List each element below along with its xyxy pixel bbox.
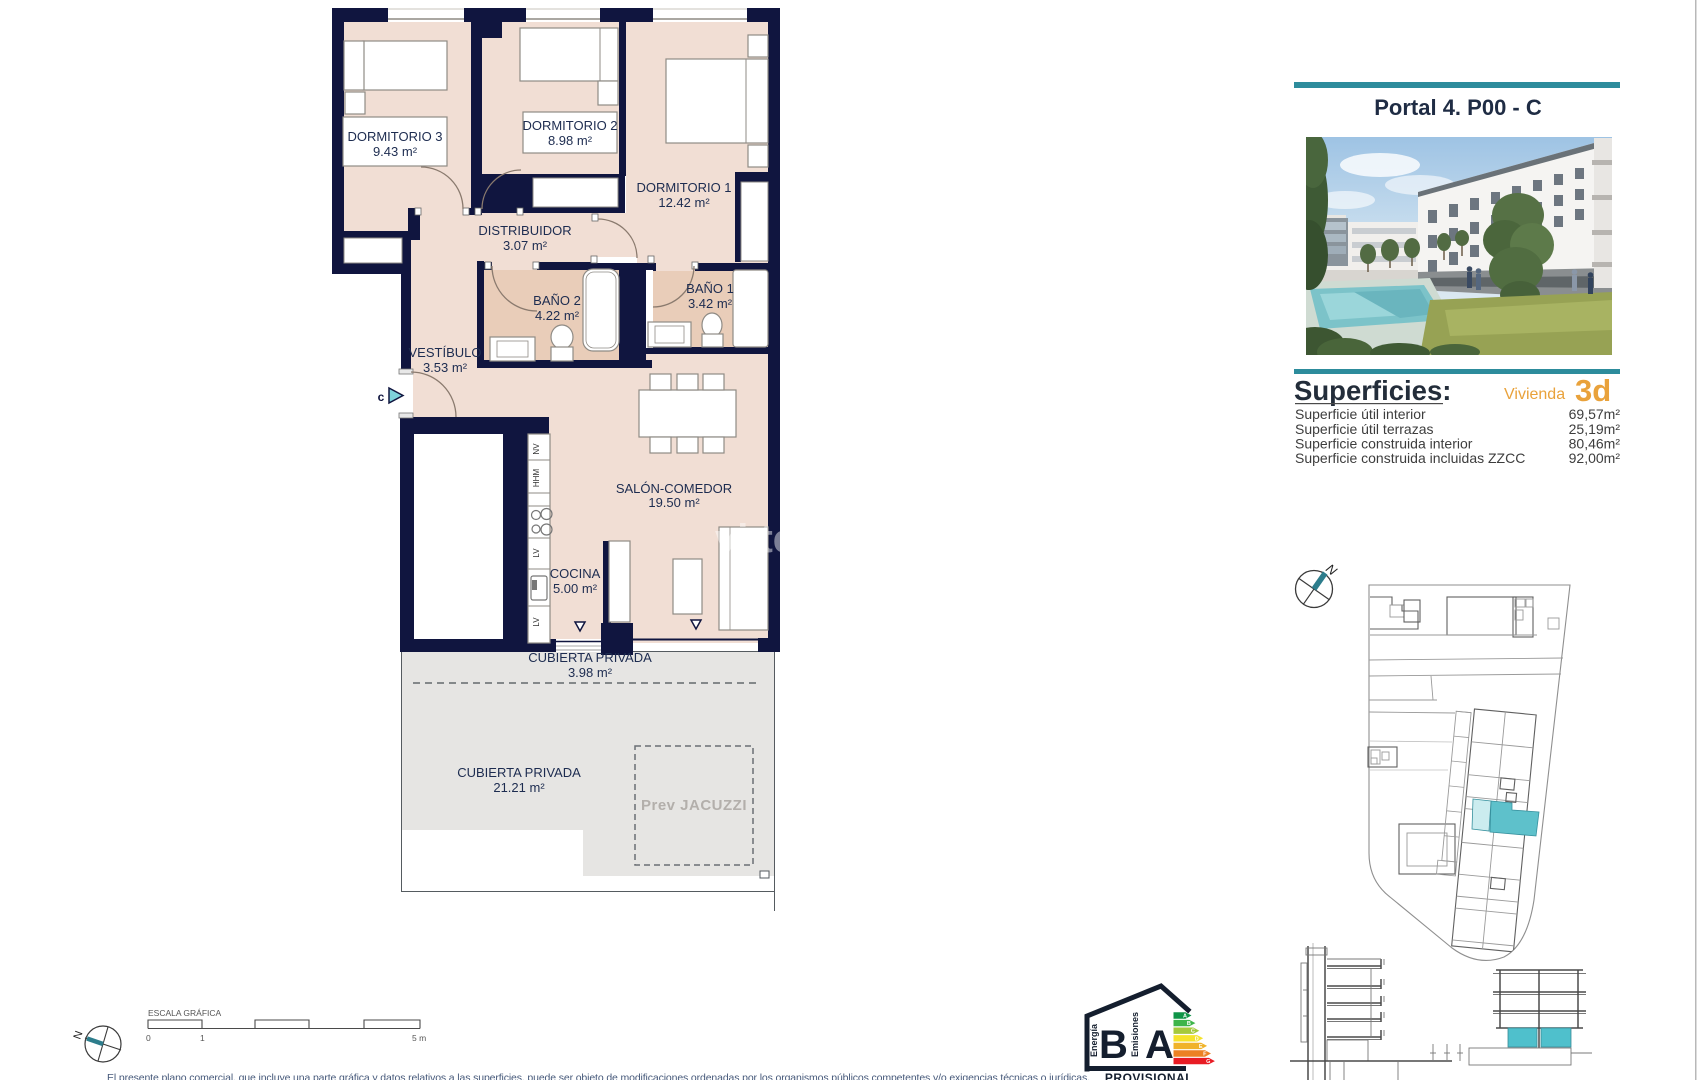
- svg-text:12.42 m²: 12.42 m²: [658, 195, 710, 210]
- svg-text:DORMITORIO 2: DORMITORIO 2: [522, 118, 617, 133]
- svg-text:5 m: 5 m: [412, 1033, 426, 1043]
- svg-text:21.21 m²: 21.21 m²: [493, 780, 545, 795]
- svg-text:SALÓN-COMEDOR: SALÓN-COMEDOR: [616, 481, 732, 496]
- svg-text:3.98 m²: 3.98 m²: [568, 665, 613, 680]
- svg-text:vi te: vi te: [715, 517, 795, 561]
- svg-text:B: B: [1099, 1023, 1128, 1067]
- svg-text:69,57m²: 69,57m²: [1569, 406, 1621, 422]
- svg-text:3.07 m²: 3.07 m²: [503, 238, 548, 253]
- svg-text:5.00 m²: 5.00 m²: [553, 581, 598, 596]
- svg-text:CUBIERTA PRIVADA: CUBIERTA PRIVADA: [457, 765, 581, 780]
- svg-text:92,00m²: 92,00m²: [1569, 450, 1621, 466]
- svg-text:LV: LV: [532, 548, 541, 558]
- svg-text:Emisiones: Emisiones: [1130, 1012, 1140, 1057]
- svg-text:Superficies:: Superficies:: [1294, 375, 1451, 406]
- svg-text:1: 1: [200, 1033, 205, 1043]
- svg-text:3.42 m²: 3.42 m²: [688, 296, 733, 311]
- svg-text:CUBIERTA PRIVADA: CUBIERTA PRIVADA: [528, 650, 652, 665]
- svg-text:8.98 m²: 8.98 m²: [548, 133, 593, 148]
- svg-text:C: C: [1191, 1029, 1195, 1035]
- svg-text:DISTRIBUIDOR: DISTRIBUIDOR: [478, 223, 571, 238]
- svg-text:G: G: [1206, 1059, 1210, 1065]
- svg-text:0: 0: [146, 1033, 151, 1043]
- svg-text:COCINA: COCINA: [550, 566, 601, 581]
- svg-text:E: E: [1199, 1044, 1203, 1050]
- svg-text:4.22 m²: 4.22 m²: [535, 308, 580, 323]
- svg-text:Energía: Energía: [1089, 1023, 1099, 1057]
- svg-text:NV: NV: [532, 443, 541, 455]
- svg-text:BAÑO 2: BAÑO 2: [533, 293, 581, 308]
- svg-text:3.53 m²: 3.53 m²: [423, 360, 468, 375]
- svg-text:Vivienda: Vivienda: [1504, 386, 1565, 403]
- svg-text:PROVISIONAL: PROVISIONAL: [1105, 1071, 1193, 1080]
- svg-text:A: A: [1183, 1014, 1187, 1020]
- svg-text:3d: 3d: [1575, 373, 1611, 408]
- svg-text:LV: LV: [532, 617, 541, 627]
- svg-text:Superficie construida incluida: Superficie construida incluidas ZZCC: [1295, 450, 1525, 466]
- svg-text:19.50 m²: 19.50 m²: [648, 495, 700, 510]
- svg-text:Prev JACUZZI: Prev JACUZZI: [641, 797, 747, 814]
- svg-text:B: B: [1187, 1021, 1191, 1027]
- svg-text:9.43 m²: 9.43 m²: [373, 144, 418, 159]
- svg-text:Superficie útil interior: Superficie útil interior: [1295, 406, 1426, 422]
- svg-text:El presente plano comercial, q: El presente plano comercial, que incluye…: [107, 1072, 1090, 1080]
- svg-text:DORMITORIO 1: DORMITORIO 1: [636, 180, 731, 195]
- svg-text:A: A: [1145, 1023, 1174, 1067]
- svg-text:D: D: [1195, 1036, 1199, 1042]
- svg-text:BAÑO 1: BAÑO 1: [686, 281, 734, 296]
- svg-text:Portal 4. P00 - C: Portal 4. P00 - C: [1374, 95, 1542, 120]
- svg-text:HHM: HHM: [532, 469, 541, 488]
- svg-text:DORMITORIO 3: DORMITORIO 3: [347, 129, 442, 144]
- svg-text:c: c: [378, 390, 385, 404]
- svg-text:VESTÍBULO: VESTÍBULO: [409, 345, 482, 360]
- svg-text:ESCALA GRÁFICA: ESCALA GRÁFICA: [148, 1008, 222, 1018]
